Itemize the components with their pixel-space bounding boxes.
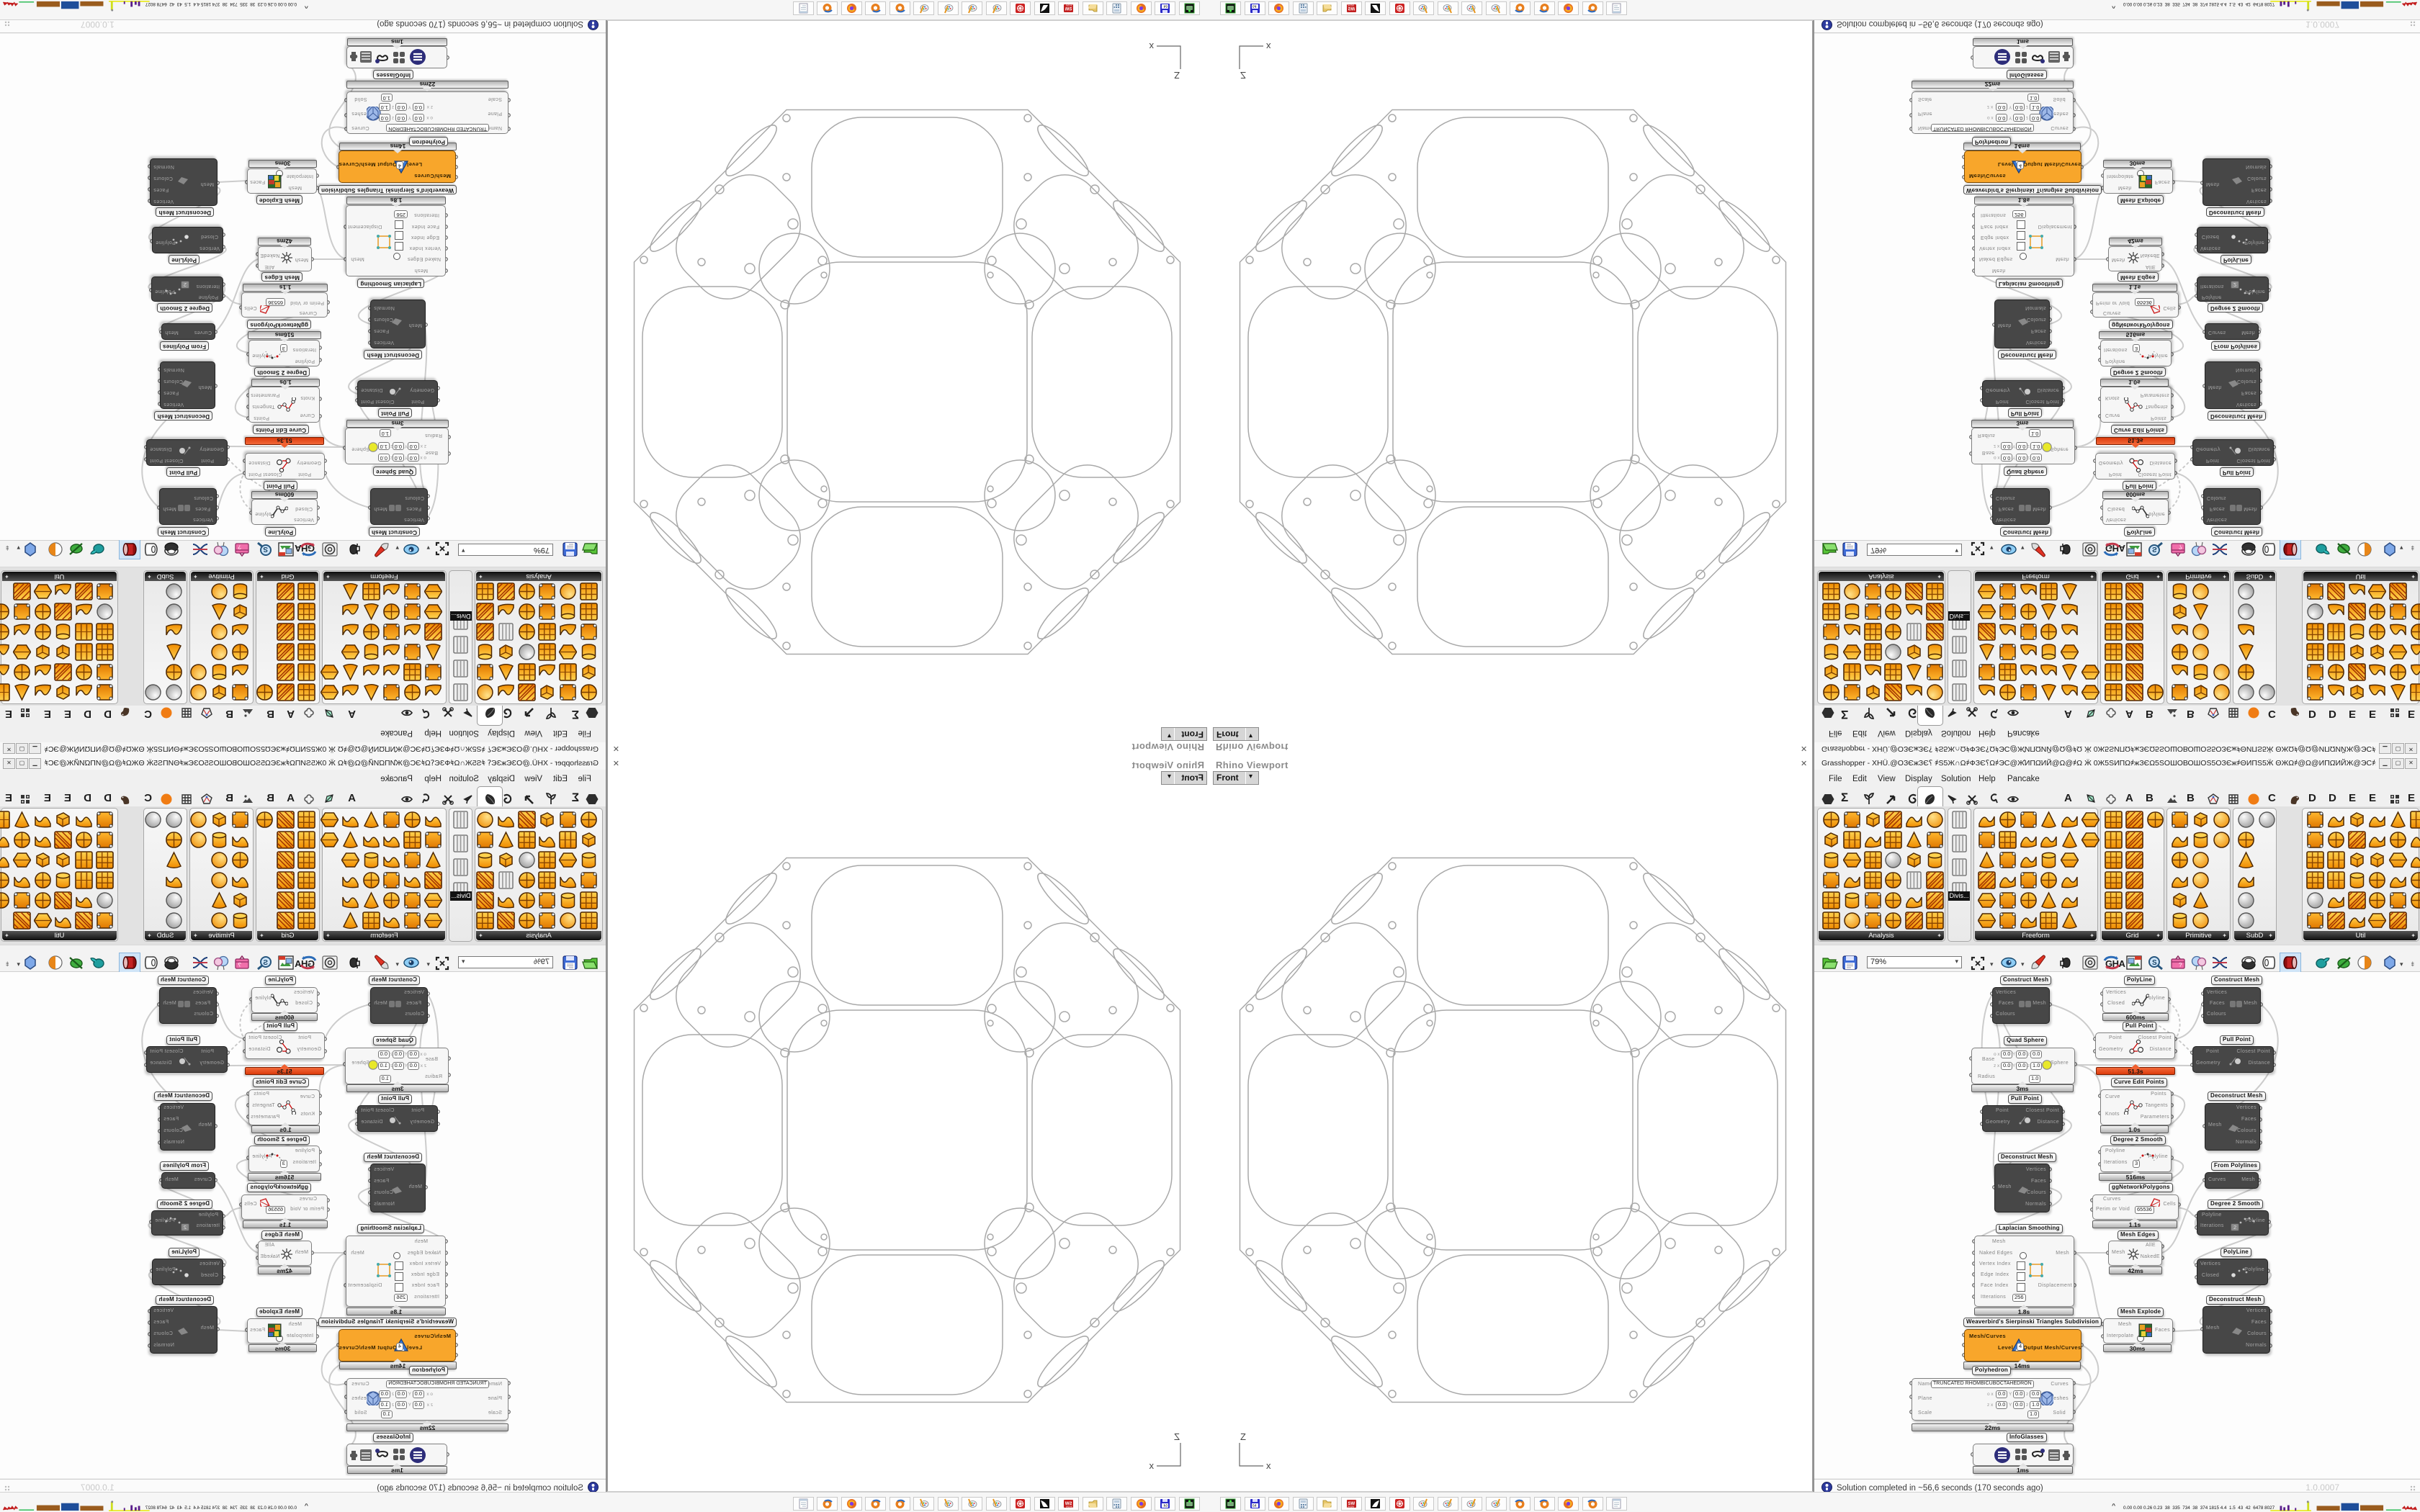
svg-text:64: 64 (1164, 1504, 1168, 1508)
svg-text:?: ? (238, 962, 241, 968)
svg-text:S: S (263, 545, 268, 553)
svg-text:x: x (1266, 41, 1271, 52)
svg-text:?: ? (2179, 544, 2182, 550)
svg-text:?: ? (2179, 962, 2182, 968)
svg-text:2020: 2020 (1348, 4, 1355, 7)
svg-text:64: 64 (1252, 1504, 1257, 1508)
svg-text:x: x (1149, 1460, 1154, 1471)
svg-text:64: 64 (1252, 4, 1257, 8)
svg-text:2020: 2020 (1348, 1505, 1355, 1508)
svg-text:Z: Z (1240, 1431, 1246, 1442)
svg-text:Z: Z (1174, 1431, 1180, 1442)
svg-text:Z: Z (1240, 70, 1246, 81)
svg-text:S: S (2152, 545, 2157, 553)
svg-text:?: ? (238, 544, 241, 550)
svg-text:2020: 2020 (1066, 4, 1073, 7)
svg-text:Z: Z (1174, 70, 1180, 81)
svg-text:x: x (1266, 1460, 1271, 1471)
svg-text:2020: 2020 (1066, 1505, 1073, 1508)
svg-text:S: S (263, 959, 268, 967)
svg-text:S: S (2152, 959, 2157, 967)
svg-text:64: 64 (1164, 4, 1168, 8)
svg-text:x: x (1149, 41, 1154, 52)
